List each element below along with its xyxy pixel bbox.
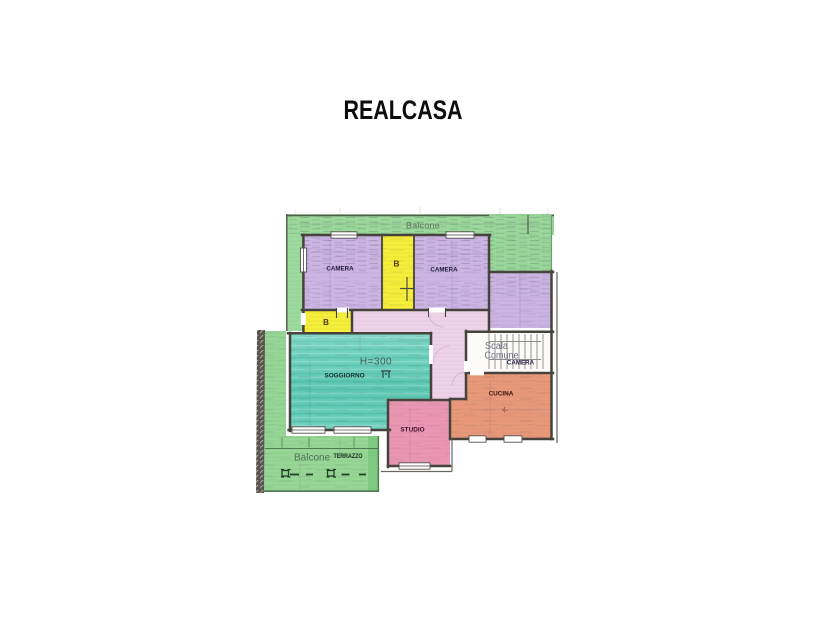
svg-text:Balcone: Balcone [294,453,331,464]
svg-text:STUDIO: STUDIO [400,427,424,434]
svg-text:SOGGIORNO: SOGGIORNO [324,373,364,380]
svg-text:B: B [393,259,399,269]
svg-text:CAMERA: CAMERA [326,266,354,273]
svg-text:CUCINA: CUCINA [489,391,514,398]
svg-text:CAMERA: CAMERA [430,267,458,274]
svg-text:TERRAZZO: TERRAZZO [334,453,363,460]
svg-text:H=300: H=300 [360,357,392,368]
svg-text:B: B [323,318,329,327]
svg-text:CAMERA: CAMERA [507,360,535,367]
svg-text:REALCASA: REALCASA [344,95,463,125]
svg-text:Balcone: Balcone [406,221,440,231]
